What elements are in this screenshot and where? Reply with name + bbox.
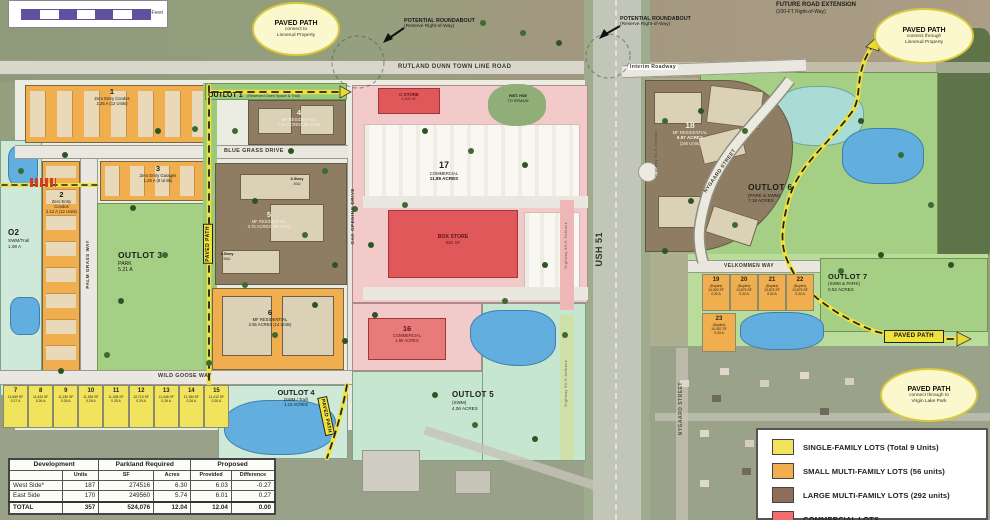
scale-bar-segments [21, 9, 151, 20]
hist-house-grove [488, 84, 546, 126]
legend-swatch [772, 487, 794, 503]
legend-label: SINGLE-FAMILY LOTS (Total 9 Units) [803, 443, 939, 452]
note-line: TO REMAIN [494, 99, 542, 104]
lot1-label: 1 Zero Entry Condos 2.26 A (12 Units) [72, 87, 152, 106]
future-road-extension-note: FUTURE ROAD EXTENSION (100-FT Right-of-W… [776, 2, 856, 15]
sf-lot-11: 1111,028 SF0.25 A [103, 385, 128, 428]
lot-area: 1.26 A (8 Units) [127, 178, 189, 183]
outlot-area: 5.21 A [118, 267, 162, 274]
outlot-desc: SWM/Trail [8, 238, 29, 244]
legend-item-small-mf: SMALL MULTI-FAMILY LOTS (56 units) [772, 463, 986, 479]
note-line: (Reserve Right-of-Way) [620, 22, 691, 28]
outlot-name: OUTLOT 7 [828, 272, 867, 281]
lot-units: (160 Units) [658, 141, 722, 146]
lot-area: 1.99 ACRES [374, 338, 440, 343]
outlot-name: OUTLOT 5 [452, 390, 494, 400]
lot-number: 18 [658, 120, 722, 130]
legend-swatch [772, 511, 794, 520]
lot-number: 2 [45, 190, 78, 199]
outlot4-label: OUTLOT 4 (SWM / Trail) 1.13 ACRES [264, 388, 328, 407]
legend-swatch [772, 439, 794, 455]
legend-item-commercial: COMMERCIAL LOTS [772, 511, 986, 520]
legend-swatch [772, 463, 794, 479]
callout-line: Linnerud Property [277, 33, 315, 39]
box-store-label: BOX STORE 92K SF [418, 234, 488, 246]
outlot-desc: (Reserved Open Space & Trail) [247, 94, 300, 98]
setback-label-pink: Highway 50-ft Setback [564, 222, 568, 268]
lot17-label: 17 COMMERCIAL 11.89 ACRES [412, 160, 476, 181]
outlot2-label: O2 SWM/Trail 1.08 A [8, 228, 29, 249]
duplex-lot-21: 21(Duplex)13,875 SF0.32 A [758, 274, 786, 311]
bigbox-existing-building [362, 450, 420, 492]
site-plan-map: RUTLAND DUNN TOWN LINE ROAD USH 51 Inter… [0, 0, 990, 520]
outlot-name: OUTLOT 4 [264, 388, 328, 397]
legend-label: COMMERCIAL LOTS [803, 515, 879, 520]
potential-roundabout-note-left: POTENTIAL ROUNDABOUT (Reserve Right-of-W… [404, 18, 475, 30]
building-label: 40U [283, 182, 311, 187]
entry-monument-mark [30, 178, 56, 187]
lot6-label: 6 MF RESIDENTIAL 2.55 ACRES (14 Units) [238, 308, 302, 327]
lot2-label: 2 Zero Entry Condos 2.12 A (12 Units) [45, 190, 78, 214]
note-line: (Reserve Right-of-Way) [404, 24, 475, 30]
table-subheader-row: Units SF Acres Provided Difference [9, 471, 275, 480]
table-row-total: TOTAL357 524,07612.04 12.040.00 [9, 502, 275, 514]
scale-bar-units: Feet [151, 10, 163, 16]
outlot6-label: OUTLOT 6 (PARK & SWM) 7.18 ACRES [748, 182, 792, 204]
legend-item-large-mf: LARGE MULTI-FAMILY LOTS (292 units) [772, 487, 986, 503]
nygaard-street-south-label: NYGAARD STREET [678, 382, 684, 435]
outlot3-park [97, 203, 205, 395]
outlot7-park [820, 258, 988, 332]
trees-layer [0, 0, 6, 6]
building-label: 4,000 SF [380, 97, 438, 102]
outlot2-pond-south [10, 297, 40, 335]
c-store-label: C-STORE 4,000 SF [380, 92, 438, 102]
wild-goose-way-label: WILD GOOSE WAY [158, 373, 212, 379]
sf-lot-7: 711,659 SF0.27 A [3, 385, 28, 428]
outlot-area: 1.08 A [8, 244, 29, 250]
duplex-lot-19: 19(Duplex)14,000 SF0.32 A [702, 274, 730, 311]
lot-area: 11.89 ACRES [412, 176, 476, 182]
scale-bar: Feet [8, 0, 168, 28]
duplex-lot-23: 23(Duplex)14,307 SF0.33 A [702, 313, 736, 352]
lot5-label: 5 MF RESIDENTIAL 3.75 ACRES (96 Units) [233, 210, 305, 229]
sf-lot-15: 1511,412 SF0.26 A [204, 385, 229, 428]
paved-path-callout-ne: PAVED PATH connect through Linnerud Prop… [874, 8, 974, 64]
lot-number: 6 [238, 308, 302, 317]
single-family-lot-row: 711,659 SF0.27 A 811,443 SF0.26 A 911,23… [3, 385, 229, 428]
table-group-header: Proposed [191, 459, 275, 471]
building-3story-56u-label: 3-Story 56U [213, 252, 241, 261]
lot-number: 17 [412, 160, 476, 171]
legend-label: SMALL MULTI-FAMILY LOTS (56 units) [803, 467, 945, 476]
sf-lot-8: 811,443 SF0.26 A [28, 385, 53, 428]
outlot-name: OUTLOT 1 [208, 92, 243, 99]
lot-number: 1 [72, 87, 152, 96]
duplex-lot-22: 22(Duplex)13,875 SF0.32 A [786, 274, 814, 311]
velkommen-way-label: VELKOMMEN WAY [724, 263, 774, 269]
lot-area: 2.26 A (12 Units) [72, 101, 152, 106]
sf-lot-14: 1411,184 SF0.26 A [179, 385, 204, 428]
lot18-building [658, 196, 704, 228]
callout-line: Linnerud Property [905, 40, 943, 46]
ush51-label: USH 51 [594, 232, 604, 267]
table-row-west: West Side*187 2745166.30 6.03-0.27 [9, 480, 275, 491]
lot-number: 3 [127, 164, 189, 173]
lot17-drive-aisle [363, 196, 588, 208]
building-label: 56U [213, 257, 241, 262]
note-line: (100-FT Right-of-Way) [776, 9, 856, 15]
outlot1-label: OUTLOT 1 (Reserved Open Space & Trail) [208, 84, 300, 102]
lot3-label: 3 Zero Entry Garages 1.26 A (8 Units) [127, 164, 189, 183]
duplex-pond [740, 312, 824, 350]
outlot-area: 1.13 ACRES [264, 402, 328, 407]
outlot-name: O2 [8, 228, 29, 238]
outlot7-label: OUTLOT 7 (SWM & PARK) 0.52 ACRES [828, 272, 867, 293]
paved-path-banner: PAVED PATH [884, 330, 944, 343]
table-row-east: East Side170 2495605.74 6.010.27 [9, 491, 275, 502]
ush51-centerline [615, 0, 617, 520]
building-3story-40u-label: 3-Story 40U [283, 177, 311, 186]
legend-item-single-family: SINGLE-FAMILY LOTS (Total 9 Units) [772, 439, 986, 455]
palm-grass-way-label: PALM GRASS WAY [85, 240, 90, 289]
outlot-area: 7.18 ACRES [748, 198, 792, 204]
table-group-header: Parkland Required [99, 459, 191, 471]
outlot-name: OUTLOT 3 [118, 250, 162, 261]
lot-number: 16 [374, 324, 440, 333]
legend: SINGLE-FAMILY LOTS (Total 9 Units) SMALL… [756, 428, 988, 520]
interim-roadway-label: Interim Roadway [628, 64, 678, 70]
building-label: 92K SF [418, 240, 488, 245]
lot16-label: 16 COMMERCIAL 1.99 ACRES [374, 324, 440, 343]
outlot3-label: OUTLOT 3 PARK 5.21 A [118, 250, 162, 274]
note-line: FUTURE ROAD EXTENSION [776, 2, 856, 9]
paved-path-callout-nw: PAVED PATH connect to Linnerud Property [252, 2, 340, 56]
outlot5-label: OUTLOT 5 (SWM) 4.06 ACRES [452, 390, 494, 411]
rutland-road-label: RUTLAND DUNN TOWN LINE ROAD [398, 64, 511, 70]
sf-lot-13: 1311,345 SF0.26 A [154, 385, 179, 428]
outlot6-pond-blue [842, 128, 924, 184]
table-group-header: Development [9, 459, 99, 471]
potential-roundabout-note-right: POTENTIAL ROUNDABOUT (Reserve Right-of-W… [620, 16, 691, 28]
lot17-drive-aisle [363, 287, 588, 300]
table-group-header-row: Development Parkland Required Proposed [9, 459, 275, 471]
lot-area: 2.12 A (12 Units) [45, 209, 78, 214]
duplex-lot-row: 19(Duplex)14,000 SF0.32 A 20(Duplex)13,8… [702, 274, 814, 311]
hist-house-note: HIST. HSE TO REMAIN [494, 94, 542, 103]
lot-area: 3.75 ACRES (96 Units) [233, 224, 305, 229]
outlot-area: 4.06 ACRES [452, 406, 494, 412]
oak-opening-drive-label: OAK OPENING DRIVE [350, 188, 355, 245]
sf-lot-10: 1011,189 SF0.26 A [78, 385, 103, 428]
outlot-area: 0.52 ACRES [828, 287, 867, 293]
parkland-table: Development Parkland Required Proposed U… [8, 458, 276, 515]
sf-lot-12: 1212,713 SF0.29 A [129, 385, 154, 428]
outlot-name: OUTLOT 6 [748, 182, 792, 193]
lot-number: 5 [233, 210, 305, 219]
lot-desc: Zero Entry Condos [45, 199, 78, 209]
callout-line: Virgin Lake Park [911, 399, 946, 405]
blue-grass-drive-road [15, 145, 348, 159]
lot-number: 4 [268, 108, 330, 117]
blue-grass-drive-label: BLUE GRASS DRIVE [224, 148, 284, 154]
paved-path-callout-se: PAVED PATH connect through to Virgin Lak… [880, 368, 978, 422]
lot-area: 1.51 ACRES (36 Units) [268, 122, 330, 127]
lot-area: 2.55 ACRES (14 Units) [238, 322, 302, 327]
duplex-lot-20: 20(Duplex)13,875 SF0.32 A [730, 274, 758, 311]
lot18-label: 18 MF RESIDENTIAL 6.97 ACRES (160 Units) [658, 120, 722, 146]
lot4-label: 4 MF RESIDENTIAL 1.51 ACRES (36 Units) [268, 108, 330, 127]
sf-lot-9: 911,230 SF0.26 A [53, 385, 78, 428]
setback-label-green: Highway 50-ft Setback [564, 360, 568, 406]
legend-label: LARGE MULTI-FAMILY LOTS (292 units) [803, 491, 950, 500]
existing-building [455, 470, 491, 494]
paved-path-label-west: PAVED PATH [203, 224, 213, 264]
